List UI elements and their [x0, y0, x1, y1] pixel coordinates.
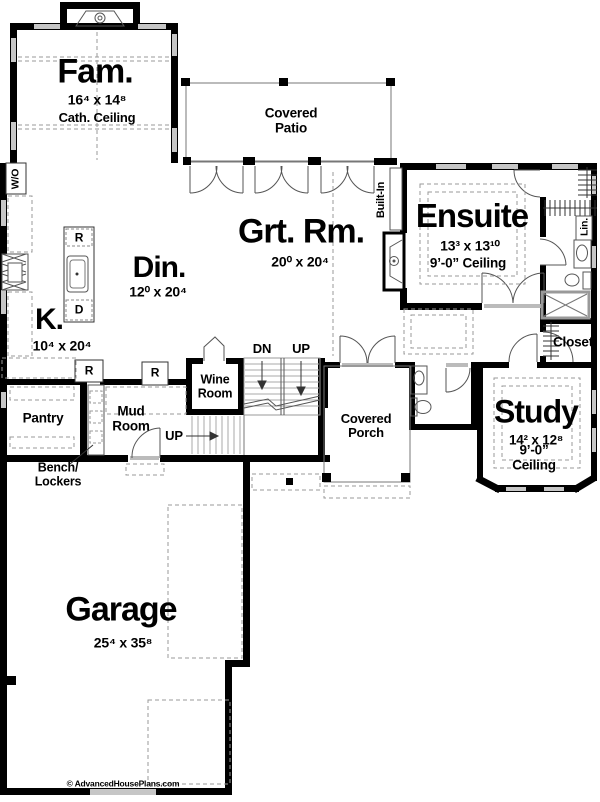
note-study-ceiling: 9’-0” Ceiling: [501, 443, 567, 472]
label-wall-oven: W/O: [10, 169, 21, 189]
note-ensuite-ceiling: 9’-0” Ceiling: [430, 257, 506, 272]
dims-ensuite: 13³ x 13¹⁰: [440, 238, 500, 253]
dims-garage: 25⁴ x 35⁸: [94, 635, 152, 650]
label-counter-r: R: [151, 367, 159, 380]
room-label-study: Study: [494, 395, 578, 430]
master-bath: [565, 240, 591, 289]
room-label-mud-room: Mud Room: [103, 404, 159, 433]
shower: [542, 292, 589, 318]
bench-lockers-strip: [88, 385, 104, 455]
label-island-r: R: [75, 232, 83, 245]
grt-rm-fireplace: [384, 233, 404, 290]
room-label-garage: Garage: [65, 592, 176, 629]
label-bench-lockers: Bench/ Lockers: [25, 462, 91, 489]
up-arrow: [186, 432, 218, 440]
room-label-grt-rm: Grt. Rm.: [238, 214, 364, 251]
label-island-d: D: [75, 304, 83, 317]
label-fridge-r: R: [85, 365, 93, 378]
room-label-din: Din.: [133, 252, 186, 284]
dims-fam: 16⁴ x 14⁸: [68, 92, 126, 107]
room-label-wine-room: Wine Room: [190, 374, 240, 401]
stair-label-up: UP: [292, 342, 310, 356]
dims-grt-rm: 20⁰ x 20⁴: [271, 254, 328, 269]
label-linen: Lin.: [579, 218, 590, 236]
master-closet-rods: [543, 167, 597, 216]
dims-kitchen: 10⁴ x 20⁴: [33, 338, 92, 353]
note-fam-ceiling: Cath. Ceiling: [59, 111, 136, 125]
range: [2, 254, 28, 290]
dims-din: 12⁰ x 20⁴: [129, 284, 186, 299]
floor-plan: Fam. 16⁴ x 14⁸ Cath. Ceiling Covered Pat…: [0, 0, 600, 802]
label-built-in: Built-In: [376, 182, 388, 218]
room-label-pantry: Pantry: [23, 412, 64, 427]
stair-label-up-lower: UP: [165, 429, 183, 443]
built-in-cabinet: [390, 168, 402, 230]
room-label-covered-patio: Covered Patio: [256, 106, 326, 135]
room-label-closet: Closet: [553, 336, 593, 351]
copyright-text: © AdvancedHousePlans.com: [67, 779, 180, 788]
stair-label-dn: DN: [253, 342, 271, 356]
room-label-fam: Fam.: [57, 54, 132, 91]
room-label-kitchen: K.: [35, 304, 63, 336]
room-label-covered-porch: Covered Porch: [333, 412, 399, 440]
room-label-ensuite: Ensuite: [416, 198, 528, 234]
